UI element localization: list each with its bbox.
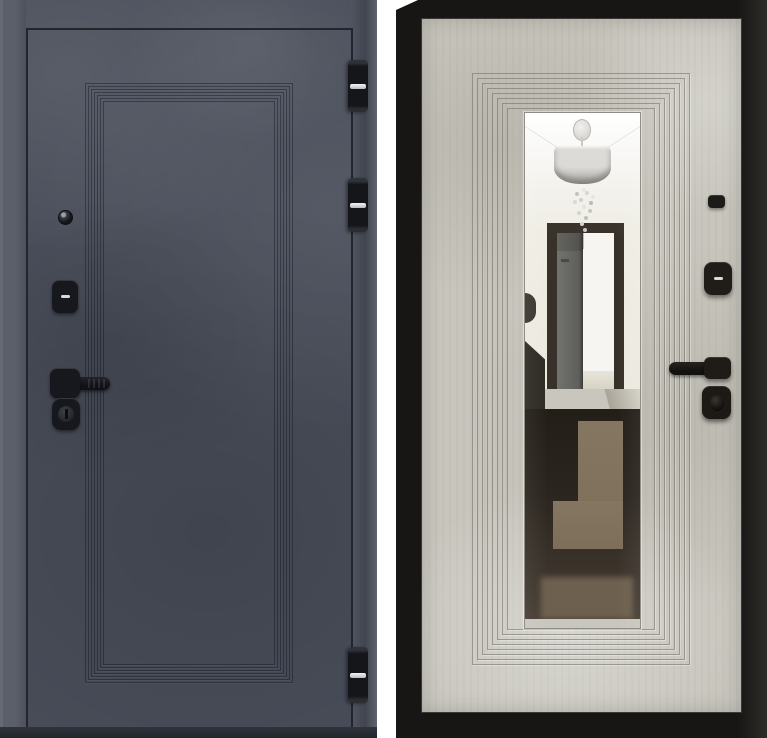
lever-handle xyxy=(669,362,707,375)
molding-groove xyxy=(103,101,275,665)
handle-rose xyxy=(50,368,80,398)
hinge-top xyxy=(348,60,368,112)
key-slot xyxy=(714,277,723,280)
keyhole xyxy=(65,409,68,419)
door-exterior-view xyxy=(0,0,377,738)
full-length-mirror xyxy=(524,112,641,629)
thumb-turn-knob xyxy=(710,395,724,411)
latch-button-cover xyxy=(708,195,725,208)
door-left-jamb-edge xyxy=(0,0,26,738)
handle-rose xyxy=(704,357,731,379)
key-cylinder xyxy=(52,398,80,430)
hinge-upper xyxy=(348,178,368,232)
thumb-turn xyxy=(702,386,731,419)
hinge-bottom xyxy=(348,647,368,703)
door-product-photo xyxy=(0,0,767,738)
panel-molding xyxy=(85,83,293,683)
key-slot xyxy=(61,295,70,298)
lock-escutcheon xyxy=(704,262,732,295)
peephole xyxy=(58,210,73,225)
door-bottom-shadow xyxy=(0,727,377,738)
photo-corner-gap xyxy=(396,0,418,10)
mirror-sheen xyxy=(525,113,640,628)
lock-escutcheon xyxy=(52,280,78,313)
door-interior-view xyxy=(396,0,767,738)
